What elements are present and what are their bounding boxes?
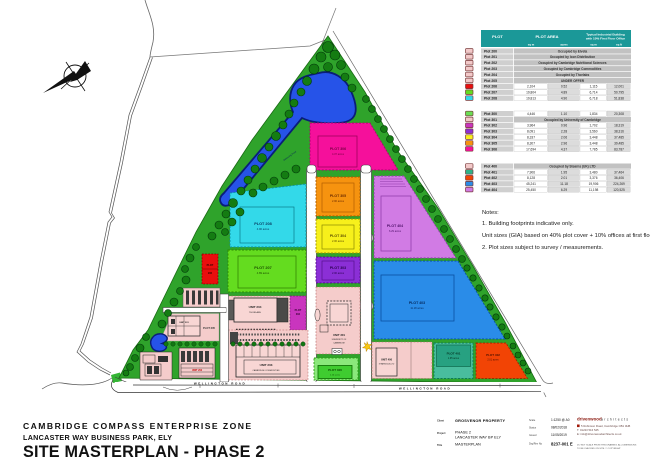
svg-text:45,241: 45,241 — [526, 182, 536, 186]
svg-text:architects: architects — [601, 418, 630, 422]
svg-text:6,714: 6,714 — [590, 91, 598, 95]
svg-text:Plot 400: Plot 400 — [484, 164, 497, 168]
svg-text:Plot 305: Plot 305 — [484, 141, 497, 145]
svg-text:2.96: 2.96 — [561, 141, 567, 145]
svg-text:2.01 acres: 2.01 acres — [487, 359, 499, 362]
svg-text:4.90: 4.90 — [561, 97, 567, 101]
svg-text:drivenwood: drivenwood — [577, 417, 602, 422]
svg-text:LANCASTER WAY BP ELY: LANCASTER WAY BP ELY — [455, 436, 501, 440]
svg-text:4.89 acres: 4.89 acres — [257, 271, 270, 275]
svg-text:11.18 acres: 11.18 acres — [410, 306, 424, 310]
svg-text:2. Plot sizes subject to surve: 2. Plot sizes subject to survey / measur… — [482, 245, 604, 251]
svg-text:37,464: 37,464 — [614, 170, 624, 174]
svg-text:51,838: 51,838 — [614, 97, 624, 101]
svg-text:11.18: 11.18 — [560, 182, 568, 186]
svg-text:TO BE CHECKED ON SITE. © COPYR: TO BE CHECKED ON SITE. © COPYRIGHT — [577, 447, 621, 450]
svg-text:18,319: 18,319 — [614, 124, 624, 128]
svg-text:GROSVENOR PROPERTY: GROSVENOR PROPERTY — [455, 419, 505, 423]
svg-text:PLOT: PLOT — [492, 34, 503, 39]
svg-text:2.96 acres: 2.96 acres — [332, 199, 345, 203]
svg-text:1.95 acres: 1.95 acres — [448, 357, 460, 360]
svg-text:83,787: 83,787 — [614, 147, 624, 151]
svg-text:PHASE 2: PHASE 2 — [455, 431, 471, 435]
svg-text:PLOT 404: PLOT 404 — [387, 224, 403, 228]
svg-text:PLOT: PLOT — [207, 264, 214, 267]
svg-text:Plot 404: Plot 404 — [484, 188, 497, 192]
svg-text:Plot 403: Plot 403 — [484, 182, 497, 186]
svg-text:UNDER OFFER: UNDER OFFER — [561, 79, 585, 83]
svg-text:Plot 402: Plot 402 — [484, 176, 497, 180]
svg-text:PLOT 300: PLOT 300 — [328, 368, 342, 372]
svg-text:DO NOT SCALE FROM THIS DRAWING: DO NOT SCALE FROM THIS DRAWING. ALL DIME… — [577, 444, 637, 447]
svg-text:3,964: 3,964 — [527, 124, 535, 128]
svg-text:3,560: 3,560 — [590, 130, 598, 134]
svg-text:Plot 202: Plot 202 — [484, 61, 497, 65]
svg-text:sq m: sq m — [590, 42, 597, 46]
svg-text:Plot 304: Plot 304 — [484, 136, 497, 140]
svg-text:19,813: 19,813 — [526, 97, 536, 101]
svg-text:Plot 300: Plot 300 — [484, 112, 497, 116]
svg-text:STEARNS (UK) LTD: STEARNS (UK) LTD — [379, 363, 395, 366]
svg-text:206: 206 — [208, 272, 213, 275]
svg-text:Client: Client — [437, 420, 444, 423]
svg-text:36,406: 36,406 — [614, 176, 624, 180]
svg-text:CAMBRIDGE: CAMBRIDGE — [333, 342, 345, 345]
svg-text:2.28: 2.28 — [561, 130, 567, 134]
svg-text:2.06 acres: 2.06 acres — [332, 239, 345, 243]
svg-text:6.29: 6.29 — [561, 188, 567, 192]
svg-text:CAMBRIDGE COMMODITIES: CAMBRIDGE COMMODITIES — [252, 369, 280, 372]
svg-text:Occupied by Cambridge Nutritio: Occupied by Cambridge Nutritional Scienc… — [538, 61, 606, 65]
svg-text:PLOT 304: PLOT 304 — [330, 234, 346, 238]
svg-text:Plot 200: Plot 200 — [484, 49, 497, 53]
svg-text:MASTERPLAN: MASTERPLAN — [455, 443, 481, 447]
svg-text:1,702: 1,702 — [590, 124, 598, 128]
svg-text:11,198: 11,198 — [589, 188, 599, 192]
svg-text:sq ft: sq ft — [616, 42, 622, 46]
svg-text:Occupied by Elveta: Occupied by Elveta — [558, 49, 588, 53]
svg-text:PLOT 303: PLOT 303 — [330, 266, 346, 270]
svg-text:1:1250 @ A0: 1:1250 @ A0 — [551, 418, 570, 422]
svg-text:8,307: 8,307 — [527, 141, 535, 145]
svg-text:302: 302 — [296, 313, 301, 316]
svg-text:8237-001 E: 8237-001 E — [551, 442, 573, 447]
svg-text:UNIT 203: UNIT 203 — [260, 363, 273, 367]
svg-text:08/02/2018: 08/02/2018 — [551, 426, 567, 430]
svg-text:PLOT: PLOT — [295, 309, 302, 312]
svg-text:Plot 205: Plot 205 — [484, 79, 497, 83]
svg-text:Plot 306: Plot 306 — [484, 147, 497, 151]
svg-text:2.01: 2.01 — [561, 176, 567, 180]
svg-text:UNIVERSITY OF: UNIVERSITY OF — [332, 339, 347, 341]
svg-text:WELLINGTON ROAD: WELLINGTON ROAD — [399, 387, 451, 391]
svg-text:Plot 401: Plot 401 — [484, 170, 497, 174]
svg-text:PLOT 208: PLOT 208 — [254, 222, 272, 226]
svg-text:1.10: 1.10 — [561, 112, 567, 116]
svg-text:sq m: sq m — [528, 42, 535, 46]
svg-text:Title: Title — [437, 444, 443, 447]
svg-text:UNIT 202: UNIT 202 — [192, 369, 203, 372]
svg-text:7,785: 7,785 — [590, 147, 598, 151]
svg-text:PLOT 402: PLOT 402 — [486, 353, 500, 357]
svg-text:19,804: 19,804 — [526, 91, 536, 95]
svg-text:224,269: 224,269 — [613, 182, 625, 186]
svg-text:PLOT 401: PLOT 401 — [447, 352, 461, 356]
svg-text:UNIT 204: UNIT 204 — [249, 305, 262, 309]
svg-text:8,128: 8,128 — [527, 176, 535, 180]
svg-text:39,485: 39,485 — [614, 141, 624, 145]
svg-text:Plot 301: Plot 301 — [484, 118, 497, 122]
svg-text:Plot 303: Plot 303 — [484, 130, 497, 134]
svg-text:2,104: 2,104 — [527, 85, 535, 89]
svg-text:3,480: 3,480 — [590, 170, 598, 174]
svg-text:Scale: Scale — [529, 419, 536, 422]
svg-text:THORLABS: THORLABS — [249, 311, 261, 314]
svg-text:8,337: 8,337 — [527, 136, 535, 140]
svg-text:PLOT 305: PLOT 305 — [330, 194, 346, 198]
svg-text:WELLINGTON ROAD: WELLINGTON ROAD — [194, 382, 246, 386]
svg-text:120,525: 120,525 — [613, 188, 625, 192]
svg-text:4.37: 4.37 — [561, 147, 567, 151]
svg-text:11/05/2019: 11/05/2019 — [551, 433, 567, 437]
svg-text:UNIT 400: UNIT 400 — [381, 358, 393, 362]
svg-text:Occupied by University of Camb: Occupied by University of Cambridge — [544, 118, 601, 122]
svg-text:Plot 201: Plot 201 — [484, 55, 497, 59]
svg-text:Plot 208: Plot 208 — [484, 97, 497, 101]
svg-text:UNIT 201: UNIT 201 — [179, 322, 189, 324]
svg-text:3,448: 3,448 — [590, 141, 598, 145]
svg-text:6,718: 6,718 — [590, 97, 598, 101]
svg-text:1.95: 1.95 — [561, 170, 567, 174]
svg-text:Plot 302: Plot 302 — [484, 124, 497, 128]
svg-text:PLOT 205: PLOT 205 — [203, 326, 216, 330]
svg-text:Occupied by Stearns (UK) LTD: Occupied by Stearns (UK) LTD — [549, 164, 596, 168]
svg-text:50,795: 50,795 — [614, 91, 624, 95]
svg-text:Project: Project — [437, 432, 446, 435]
svg-text:0.96: 0.96 — [561, 124, 567, 128]
svg-text:25,450: 25,450 — [526, 188, 536, 192]
svg-text:3,448: 3,448 — [590, 136, 598, 140]
svg-text:7,906: 7,906 — [527, 170, 535, 174]
svg-text:Unit sizes (GIA) based on 40%: Unit sizes (GIA) based on 40% plot cover… — [482, 233, 650, 239]
svg-text:6.29 acres: 6.29 acres — [389, 229, 402, 233]
svg-text:38,316: 38,316 — [614, 130, 624, 134]
svg-text:CAMBRIDGE COMPASS ENTERPRISE Z: CAMBRIDGE COMPASS ENTERPRISE ZONE — [23, 421, 253, 431]
svg-text:Plot 207: Plot 207 — [484, 91, 497, 95]
svg-text:Plot 204: Plot 204 — [484, 73, 497, 77]
svg-text:PLOT AREA: PLOT AREA — [536, 34, 559, 39]
svg-text:PLOT 207: PLOT 207 — [254, 266, 272, 270]
svg-text:19,906: 19,906 — [589, 182, 599, 186]
svg-text:4.89: 4.89 — [561, 91, 567, 95]
svg-text:2.06: 2.06 — [561, 136, 567, 140]
svg-text:PLOT 306: PLOT 306 — [330, 147, 346, 151]
svg-text:4.37 acres: 4.37 acres — [332, 152, 345, 156]
svg-text:Issued: Issued — [529, 434, 537, 437]
svg-text:20,308: 20,308 — [614, 112, 624, 116]
svg-text:4,446: 4,446 — [527, 112, 535, 116]
svg-text:1. Building footprints indicat: 1. Building footprints indicative only. — [482, 221, 574, 227]
svg-text:Plot 206: Plot 206 — [484, 85, 497, 89]
svg-text:Notes:: Notes: — [482, 210, 499, 216]
svg-text:Occupied by Cambridge Commodit: Occupied by Cambridge Commodities — [544, 67, 602, 71]
svg-text:3,376: 3,376 — [590, 176, 598, 180]
svg-text:Drg/Rev No: Drg/Rev No — [529, 443, 543, 446]
svg-text:PLOT 403: PLOT 403 — [409, 301, 425, 305]
svg-text:E: info@drivenwoodarchitects.c: E: info@drivenwoodarchitects.co.uk — [577, 432, 622, 436]
svg-text:Occupied by Icon Distribution: Occupied by Icon Distribution — [550, 55, 595, 59]
svg-text:Status: Status — [529, 427, 537, 430]
svg-text:17,694: 17,694 — [526, 147, 536, 151]
svg-text:8,091: 8,091 — [527, 130, 535, 134]
svg-text:12,001: 12,001 — [614, 85, 624, 89]
svg-text:with 10% First Floor Office: with 10% First Floor Office — [585, 37, 625, 41]
svg-text:acres: acres — [560, 42, 568, 46]
svg-text:2.00 acres: 2.00 acres — [332, 271, 345, 275]
svg-text:1,834: 1,834 — [590, 112, 598, 116]
svg-text:LANCASTER WAY BUSINESS PARK, E: LANCASTER WAY BUSINESS PARK, ELY — [23, 433, 172, 442]
svg-text:1.10 acres: 1.10 acres — [330, 374, 341, 377]
svg-text:SITE MASTERPLAN - PHASE 2: SITE MASTERPLAN - PHASE 2 — [23, 443, 265, 459]
svg-text:Occupied by Thorlabs: Occupied by Thorlabs — [556, 73, 590, 77]
svg-text:0.52: 0.52 — [561, 85, 567, 89]
svg-text:UNIT 301: UNIT 301 — [333, 333, 345, 337]
svg-text:1,115: 1,115 — [590, 85, 598, 89]
svg-text:Plot 203: Plot 203 — [484, 67, 497, 71]
svg-text:37,485: 37,485 — [614, 136, 624, 140]
svg-text:4.90 acres: 4.90 acres — [257, 227, 270, 231]
